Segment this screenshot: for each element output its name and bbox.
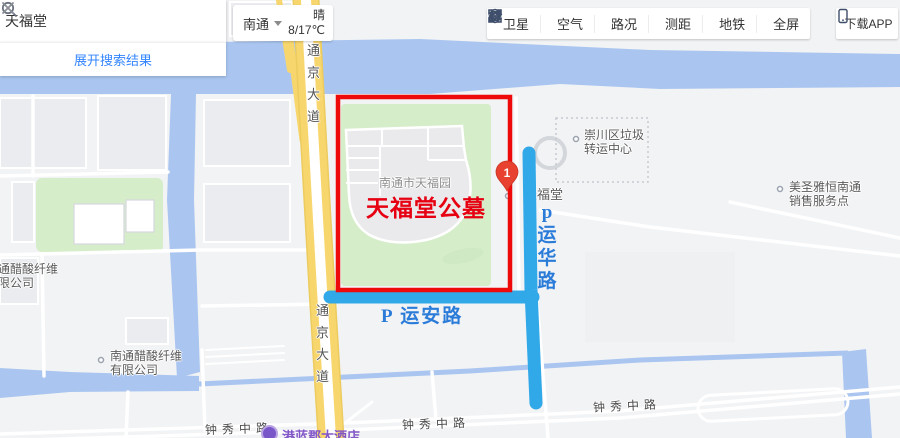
phone-icon [836,8,850,24]
expand-results-link[interactable]: 展开搜索结果 [74,50,152,69]
hotel-label: 港蓝郡大酒店 [282,426,360,438]
city-weather-box: 南通 晴 8/17℃ [233,5,333,41]
chevron-down-icon [274,21,282,26]
fullscreen-button[interactable]: 全屏 [757,15,810,33]
cemetery-building [346,126,471,242]
search-panel: 天福堂 [0,0,226,42]
measure-distance-button[interactable]: 测距 [649,15,703,33]
yunan-road-annotation: P 运安路 [381,301,463,328]
weather-condition: 晴 [288,8,325,23]
weather-widget[interactable]: 晴 8/17℃ [288,8,325,38]
close-icon [0,0,16,16]
map-application: 南通市天福园 天福堂 崇川区垃圾 转运中心 美圣雅恒南通 销售服务点 南通醋酸纤… [0,0,900,438]
yunhua-road-annotation: p运华路 [536,201,558,293]
fullscreen-icon [487,8,503,24]
air-quality-button[interactable]: 空气 [541,15,595,33]
download-app-button[interactable]: 下载APP [836,8,898,39]
weather-temperature: 8/17℃ [288,23,325,38]
city-selector[interactable]: 南通 [243,14,269,33]
cemetery-title-annotation: 天福堂公墓 [366,189,486,223]
search-input[interactable]: 天福堂 [0,11,158,31]
expand-results-bar: 展开搜索结果 [0,42,226,76]
roundabout [535,138,565,168]
traffic-button[interactable]: 路况 [595,15,649,33]
map-toolbar: 卫星 空气 路况 测距 [487,8,810,39]
hotel-marker[interactable] [261,425,278,438]
subway-button[interactable]: 地铁 [703,15,757,33]
